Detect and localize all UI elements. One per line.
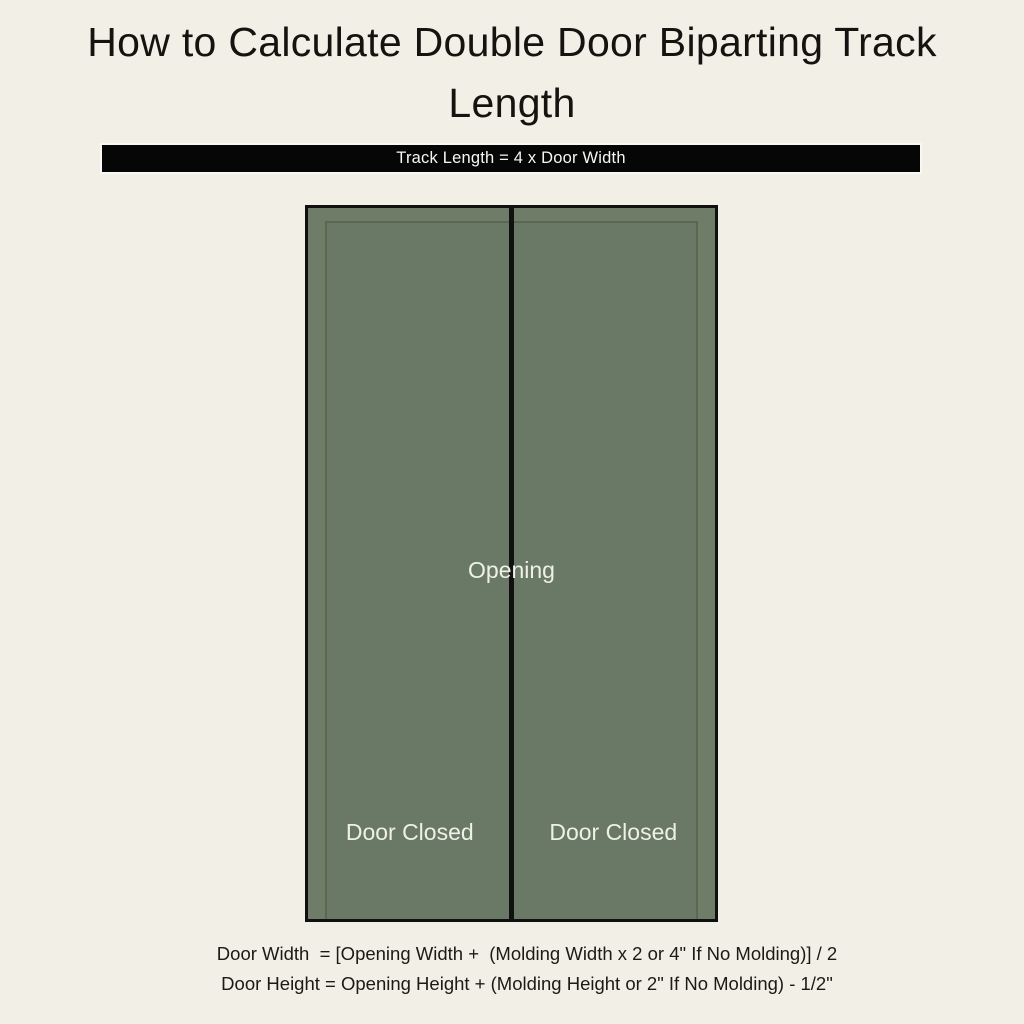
page-title: How to Calculate Double Door Biparting T…: [32, 12, 992, 134]
left-door-closed-label: Door Closed: [308, 819, 512, 845]
infographic-canvas: How to Calculate Double Door Biparting T…: [0, 0, 1024, 1024]
formula-block: Door Width = [Opening Width + (Molding W…: [217, 939, 837, 999]
opening-label: Opening: [308, 557, 715, 583]
door-height-formula: Door Height = Opening Height + (Molding …: [217, 969, 837, 999]
double-door-diagram: Opening Door Closed Door Closed: [305, 205, 718, 922]
door-width-formula: Door Width = [Opening Width + (Molding W…: [217, 939, 837, 969]
track-length-banner: Track Length = 4 x Door Width: [102, 145, 920, 172]
track-length-formula: Track Length = 4 x Door Width: [102, 145, 920, 172]
right-door-closed-label: Door Closed: [512, 819, 716, 845]
